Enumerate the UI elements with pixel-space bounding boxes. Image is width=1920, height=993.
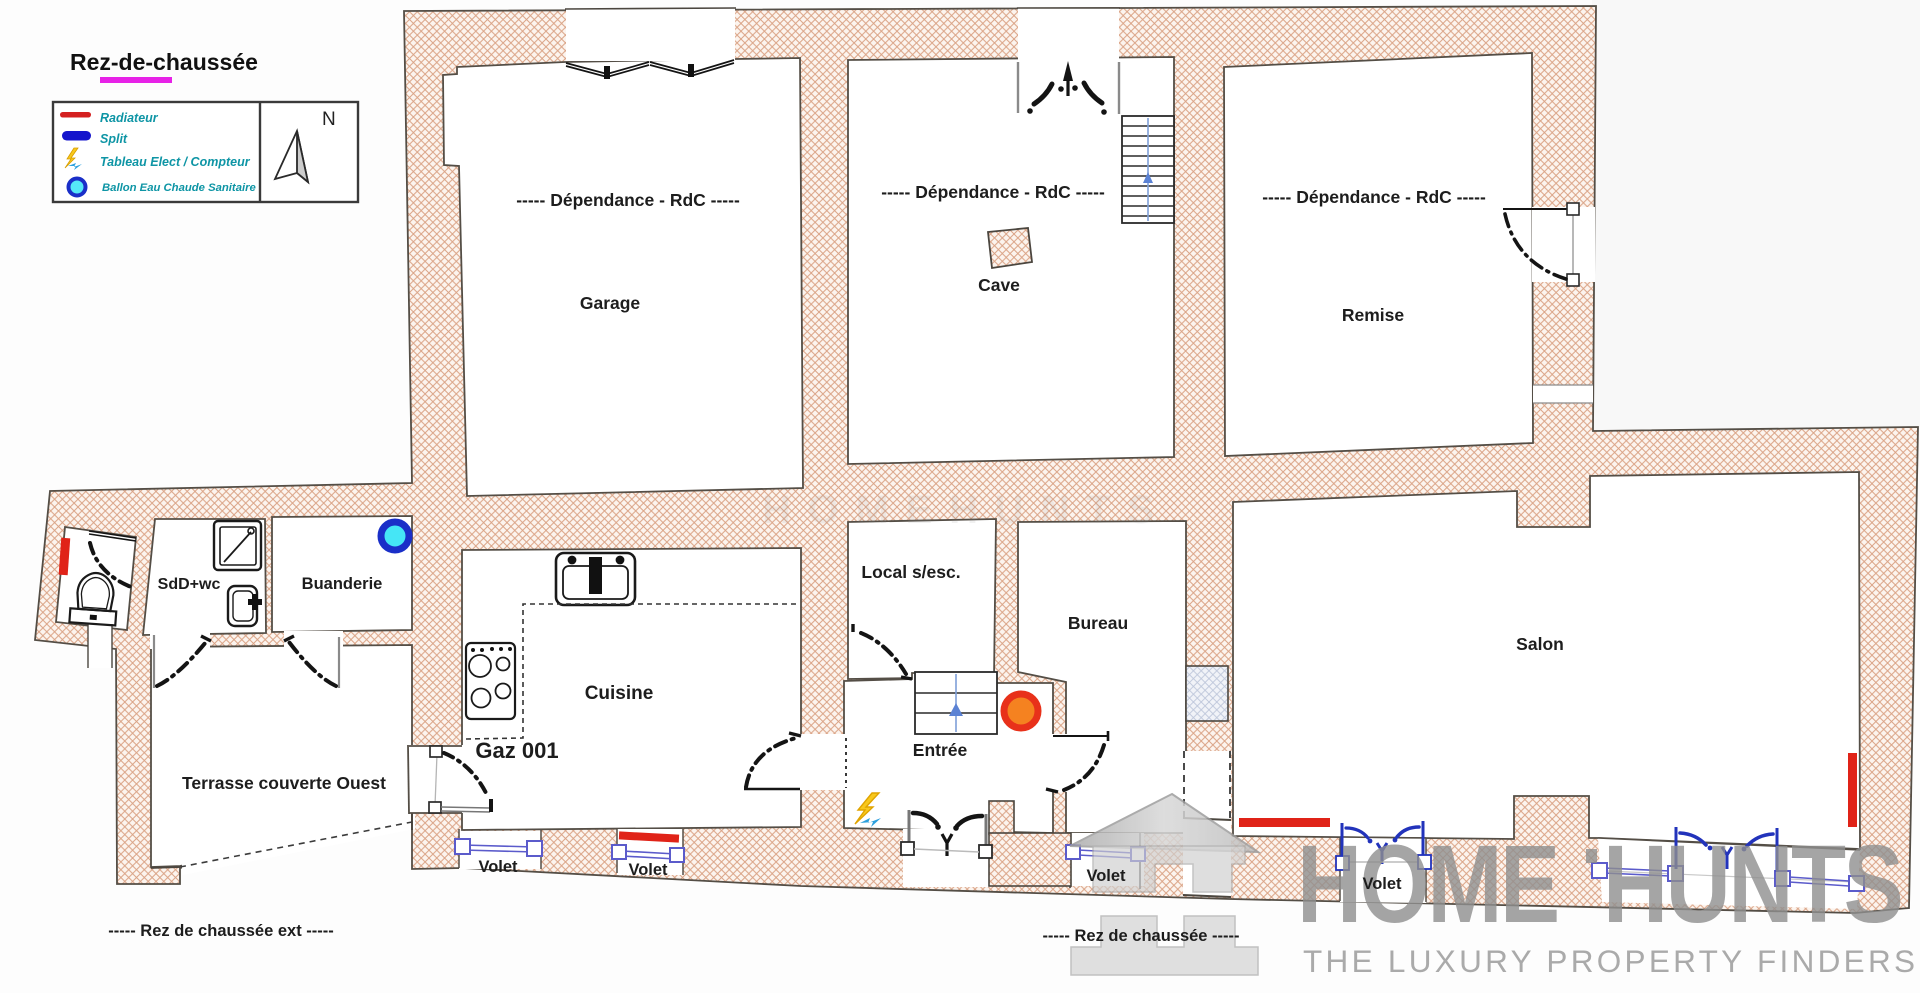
- svg-text:Local s/esc.: Local s/esc.: [861, 562, 960, 582]
- svg-text:Cave: Cave: [978, 275, 1020, 295]
- svg-text:Terrasse couverte Ouest: Terrasse couverte Ouest: [182, 773, 386, 793]
- svg-text:Remise: Remise: [1342, 305, 1405, 325]
- svg-text:HUNTS: HUNTS: [1603, 824, 1901, 946]
- svg-text:----- Dépendance - RdC -----: ----- Dépendance - RdC -----: [516, 190, 740, 210]
- svg-text:Split: Split: [100, 132, 128, 146]
- svg-text:Garage: Garage: [580, 293, 641, 313]
- svg-text:Entrée: Entrée: [913, 740, 968, 760]
- svg-text:SdD+wc: SdD+wc: [158, 576, 221, 593]
- svg-text:HOMEHUNTS: HOMEHUNTS: [762, 488, 1157, 532]
- svg-text:HOME: HOME: [1297, 824, 1558, 946]
- svg-text:Radiateur: Radiateur: [100, 111, 159, 125]
- svg-text:Cuisine: Cuisine: [585, 683, 654, 704]
- svg-text:----- Rez de chaussée ext: ----- Rez de chaussée ext -----: [108, 922, 334, 940]
- svg-text:----- Dépendance - RdC -----: ----- Dépendance - RdC -----: [881, 182, 1105, 202]
- svg-text:Volet: Volet: [628, 861, 668, 879]
- svg-text:Volet: Volet: [1362, 875, 1402, 893]
- svg-text:Volet: Volet: [1086, 867, 1126, 885]
- svg-text:----- Rez de chaussée ----: ----- Rez de chaussée -----: [1042, 927, 1239, 945]
- svg-text:Gaz 001: Gaz 001: [475, 738, 558, 763]
- svg-text:----- Dépendance - RdC -----: ----- Dépendance - RdC -----: [1262, 187, 1486, 207]
- svg-text:Bureau: Bureau: [1068, 613, 1128, 633]
- svg-text:N: N: [322, 109, 336, 130]
- svg-text:Salon: Salon: [1516, 634, 1564, 654]
- svg-text:Buanderie: Buanderie: [302, 575, 383, 593]
- svg-text:Ballon Eau Chaude Sanitaire: Ballon Eau Chaude Sanitaire: [102, 182, 256, 194]
- svg-text:Tableau Elect / Compteur: Tableau Elect / Compteur: [100, 155, 251, 169]
- svg-text:Rez-de-chaussée: Rez-de-chaussée: [70, 49, 258, 75]
- svg-text:Volet: Volet: [478, 858, 518, 876]
- svg-text:THE LUXURY PROPERTY FINDERS: THE LUXURY PROPERTY FINDERS: [1303, 943, 1915, 979]
